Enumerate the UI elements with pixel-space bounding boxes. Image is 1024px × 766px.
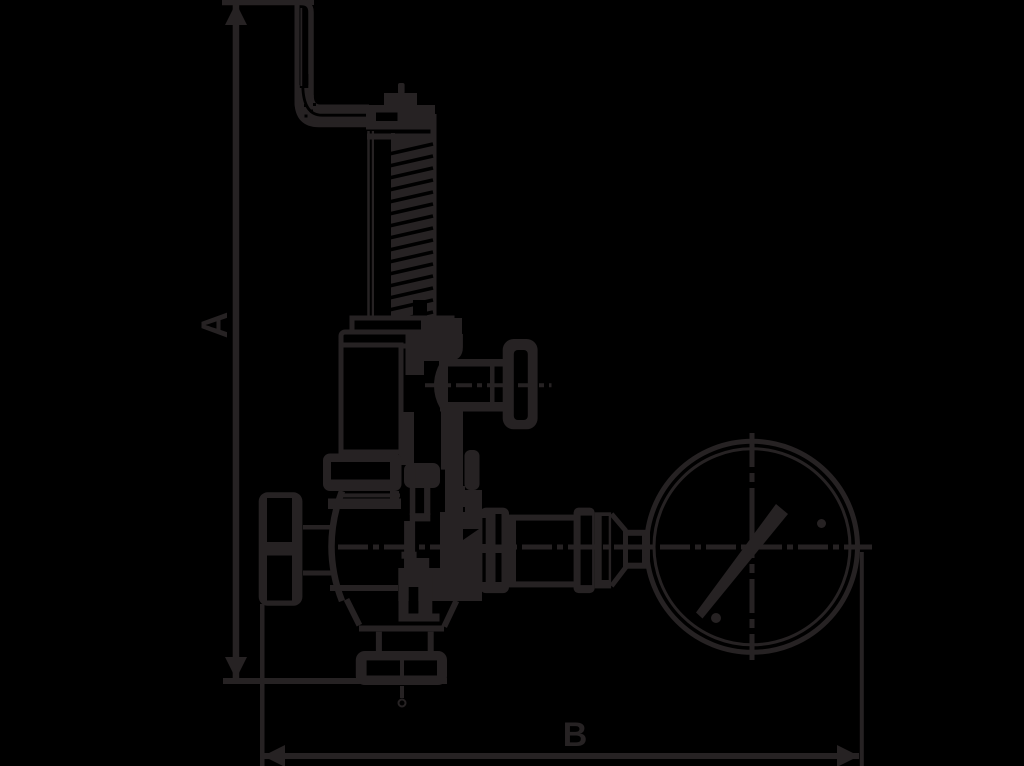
svg-text:B: B: [563, 716, 588, 754]
svg-text:A: A: [194, 312, 235, 339]
